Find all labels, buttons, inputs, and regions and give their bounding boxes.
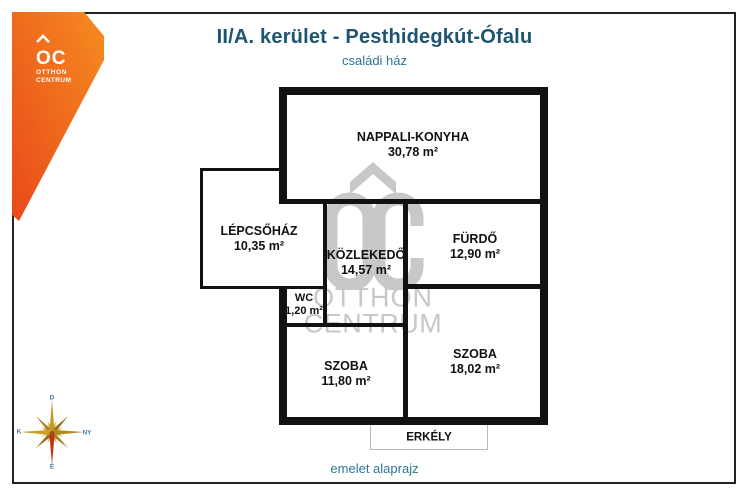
plan-caption: emelet alaprajz	[0, 461, 749, 476]
compass-label-top: D	[50, 395, 55, 402]
compass-label-right: NY	[82, 430, 91, 437]
room-label-bedroom-small: SZOBA 11,80 m²	[321, 359, 370, 389]
watermark-roof-icon	[350, 162, 396, 194]
room-name: NAPPALI-KONYHA	[357, 130, 469, 145]
compass-label-bottom: É	[50, 464, 54, 471]
room-label-bathroom: FÜRDŐ 12,90 m²	[450, 232, 500, 262]
room-name: WC	[285, 292, 323, 305]
room-area: 10,35 m²	[220, 239, 297, 254]
room-area: 1,20 m²	[285, 305, 323, 318]
logo-mark-text: OC	[36, 48, 67, 69]
room-area: 12,90 m²	[450, 247, 500, 262]
wall-exterior-right	[540, 87, 548, 425]
room-name: KÖZLEKEDŐ	[327, 248, 405, 263]
room-area: 30,78 m²	[357, 145, 469, 160]
wall-livingroom-bottom	[283, 199, 541, 204]
room-label-wc: WC 1,20 m²	[285, 292, 323, 318]
wall-center-vertical	[403, 199, 408, 420]
floorplan-page: OC OTTHON CENTRUM II/A. kerület - Pesthi…	[0, 0, 749, 500]
wall-hallway-bottom	[283, 323, 408, 327]
wall-exterior-top	[279, 87, 548, 95]
room-label-bedroom-large: SZOBA 18,02 m²	[450, 347, 500, 377]
room-name: LÉPCSŐHÁZ	[220, 224, 297, 239]
room-label-balcony: ERKÉLY	[406, 431, 452, 446]
room-label-staircase: LÉPCSŐHÁZ 10,35 m²	[220, 224, 297, 254]
logo-name-line1: OTTHON	[36, 69, 67, 76]
wall-staircase-bottom	[200, 286, 327, 289]
wall-exterior-left-upper	[279, 87, 287, 204]
wall-bathroom-bottom	[408, 284, 541, 289]
logo-banner-shape	[12, 12, 104, 221]
room-label-hallway: KÖZLEKEDŐ 14,57 m²	[327, 248, 405, 278]
wall-staircase-top	[200, 168, 279, 171]
otthon-centrum-logo: OC OTTHON CENTRUM	[12, 12, 112, 227]
room-name: FÜRDŐ	[450, 232, 500, 247]
room-label-livingroom: NAPPALI-KONYHA 30,78 m²	[357, 130, 469, 160]
room-name: SZOBA	[321, 359, 370, 374]
room-area: 18,02 m²	[450, 362, 500, 377]
room-name: SZOBA	[450, 347, 500, 362]
wall-exterior-bottom	[279, 417, 548, 425]
compass-center-dot	[50, 431, 54, 435]
wall-staircase-left	[200, 168, 203, 289]
page-subtitle: családi ház	[0, 53, 749, 68]
logo-name-line2: CENTRUM	[36, 77, 71, 84]
compass-label-left: K	[17, 429, 22, 436]
page-title: II/A. kerület - Pesthidegkút-Ófalu	[0, 26, 749, 49]
compass-rose-icon	[18, 395, 86, 469]
room-area: 11,80 m²	[321, 374, 370, 389]
room-area: 14,57 m²	[327, 263, 405, 278]
